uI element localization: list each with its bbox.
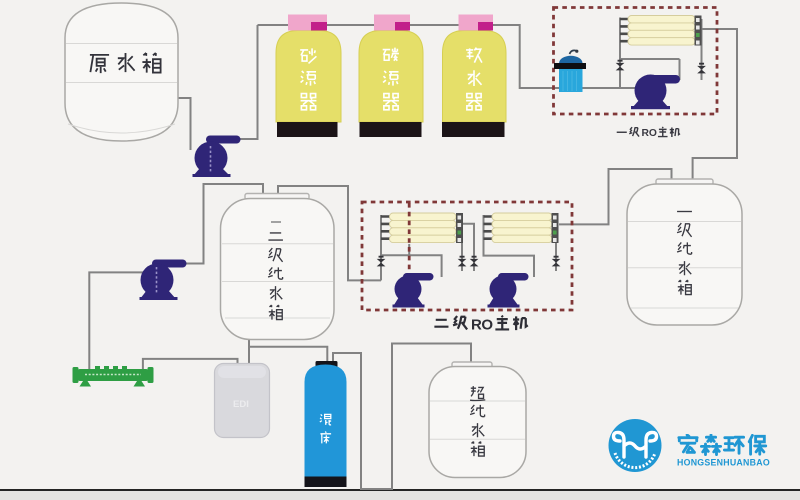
svg-text:EDI: EDI [233,399,249,410]
svg-text:RO: RO [642,128,657,139]
svg-text:HONGSENHUANBAO: HONGSENHUANBAO [677,458,770,468]
svg-text:RO: RO [471,317,493,334]
